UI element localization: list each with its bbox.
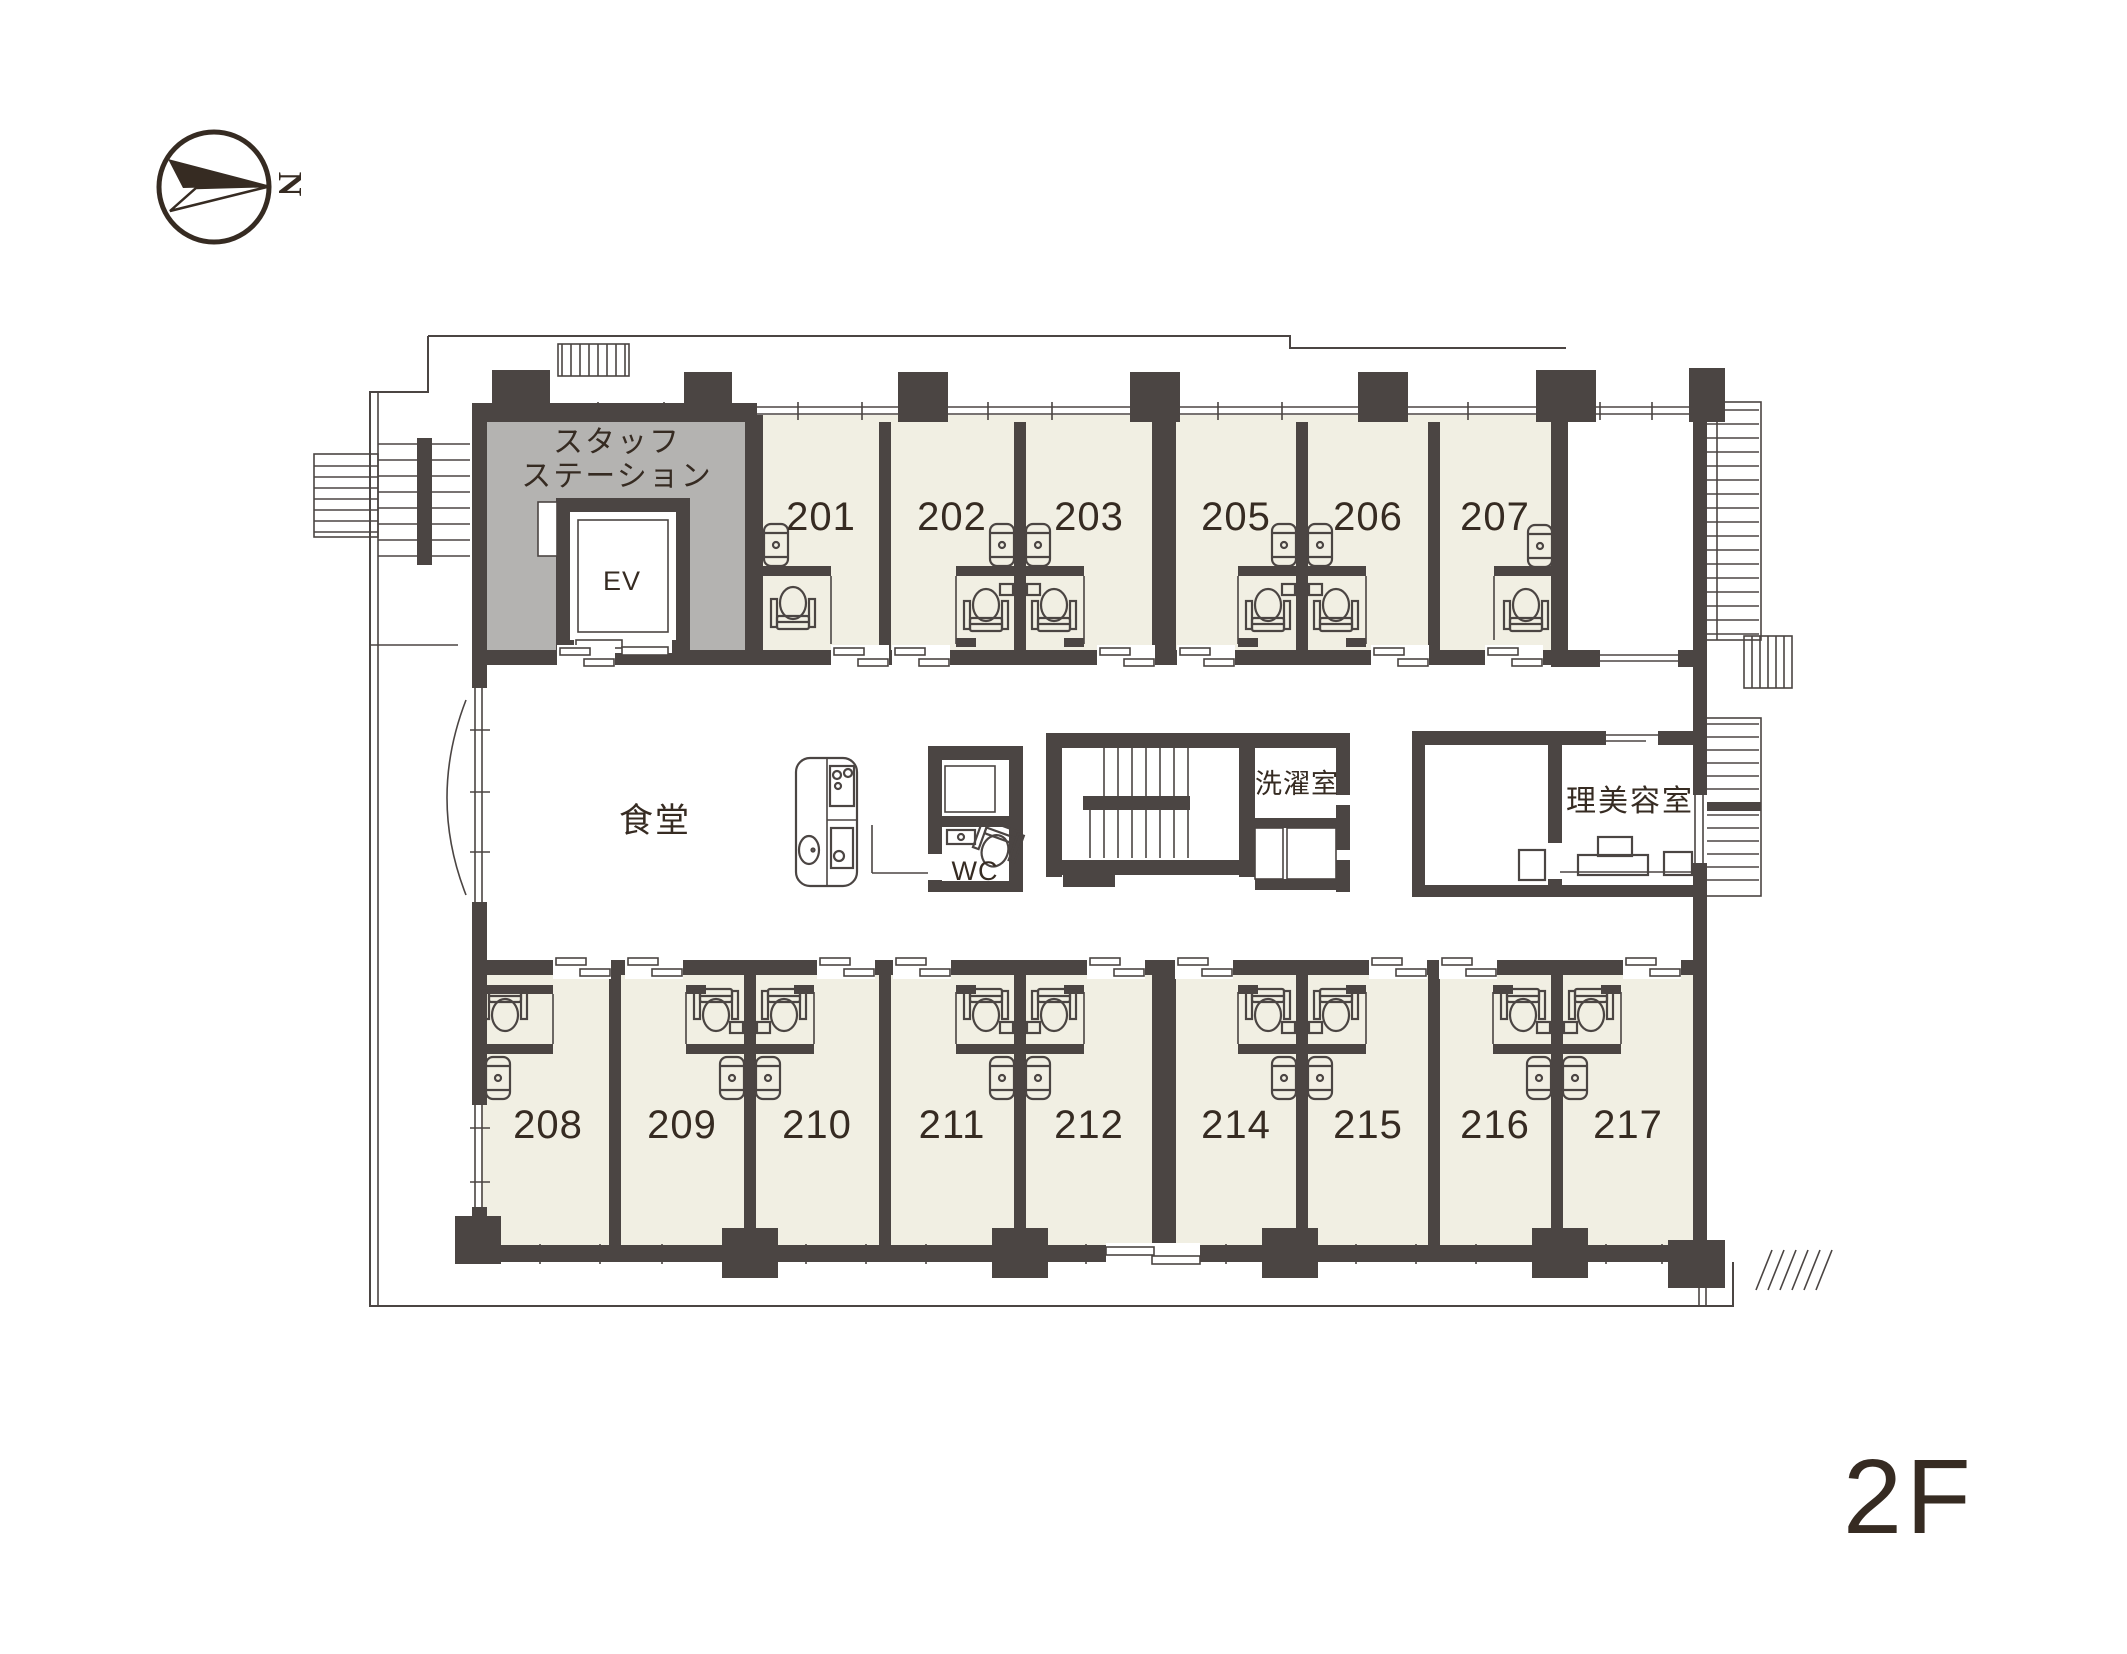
kitchen-counter-icon [796, 758, 857, 886]
room-label-215: 215 [1333, 1103, 1403, 1147]
room-label-206: 206 [1333, 495, 1403, 539]
laundry-room-label: 洗濯室 [1255, 769, 1339, 799]
room-label-205: 205 [1201, 495, 1271, 539]
staff-station-label-line1: スタッフ [553, 426, 681, 459]
room-label-212: 212 [1054, 1103, 1124, 1147]
floor-plan-graphic: N [0, 0, 2127, 1654]
room-label-210: 210 [782, 1103, 852, 1147]
salon-furniture [1519, 837, 1692, 880]
beauty-salon-label: 理美容室 [1566, 785, 1694, 818]
room-label-203: 203 [1054, 495, 1124, 539]
compass-north-label: N [271, 172, 308, 197]
room-label-209: 209 [647, 1103, 717, 1147]
room-label-202: 202 [917, 495, 987, 539]
room-label-208: 208 [513, 1103, 583, 1147]
dining-room-label: 食堂 [619, 802, 691, 840]
room-label-216: 216 [1460, 1103, 1530, 1147]
north-arrow-icon: N [159, 132, 308, 242]
floor-plan-page: N [0, 0, 2127, 1654]
room-label-201: 201 [786, 495, 856, 539]
room-label-211: 211 [919, 1103, 986, 1147]
room-label-214: 214 [1201, 1103, 1271, 1147]
floor-badge: 2F [1843, 1438, 1975, 1556]
room-label-217: 217 [1593, 1103, 1663, 1147]
room-label-207: 207 [1460, 495, 1530, 539]
staff-station-label-line2: ステーション [521, 460, 712, 493]
elevator-label: EV [603, 566, 641, 596]
wc-label: WC [952, 856, 999, 886]
